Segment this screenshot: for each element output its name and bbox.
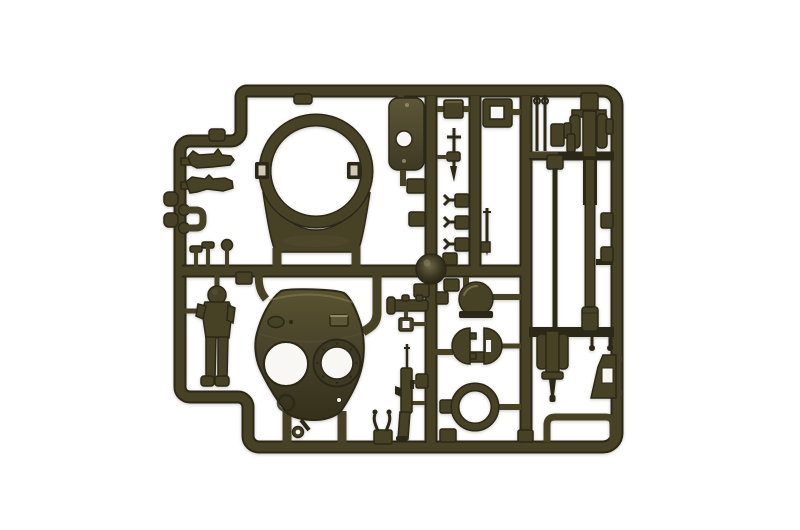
needle-rod-part bbox=[481, 208, 491, 256]
sprue-photo bbox=[0, 0, 800, 530]
stowage-tool-part-2 bbox=[181, 175, 233, 193]
sprue-boss bbox=[416, 254, 446, 284]
sprue-pins bbox=[190, 240, 233, 268]
figure-leg bbox=[206, 337, 216, 379]
fitting-block-part bbox=[437, 100, 470, 118]
gate-tab bbox=[209, 129, 225, 141]
ring-lug-slot bbox=[351, 166, 358, 176]
antenna-part bbox=[437, 128, 461, 182]
ring-lug-slot bbox=[259, 166, 266, 176]
collar-sheen bbox=[283, 235, 349, 247]
frame-opening bbox=[490, 106, 504, 119]
plate-hole bbox=[396, 131, 412, 147]
gate-tab bbox=[294, 94, 312, 104]
rail-blocks bbox=[440, 429, 533, 442]
figure-leg bbox=[218, 337, 228, 379]
vision-port bbox=[268, 317, 284, 328]
turret-ring-part bbox=[255, 120, 370, 268]
gun-mount-part bbox=[551, 93, 613, 157]
stowage-tool-part-1 bbox=[181, 149, 234, 168]
gun-barrel-part bbox=[582, 157, 598, 331]
periscope-part bbox=[387, 295, 428, 331]
dome-hatch-part bbox=[459, 277, 521, 318]
rifle-part bbox=[395, 344, 425, 441]
gate-tab bbox=[164, 192, 178, 206]
turret-hatch-hole-left bbox=[264, 342, 308, 386]
turret-shell-part bbox=[255, 273, 377, 444]
tow-bar-part bbox=[547, 417, 613, 442]
door-slot bbox=[486, 340, 491, 352]
clevis-parts bbox=[444, 194, 469, 251]
wishbone-part bbox=[373, 410, 393, 445]
barrel-rod-part bbox=[547, 155, 563, 331]
seal-ring-part bbox=[440, 387, 521, 427]
photo-stage bbox=[0, 0, 800, 530]
commander-hatch-frame-part bbox=[483, 99, 521, 127]
hatch-doors-part bbox=[434, 328, 521, 364]
gate-tab bbox=[164, 213, 178, 227]
crew-figure-part bbox=[184, 272, 235, 386]
shield-slot bbox=[602, 368, 613, 383]
muzzle-collar bbox=[582, 307, 598, 331]
turret-hatch-hole-right bbox=[321, 347, 353, 379]
hatch-door-left bbox=[452, 328, 470, 364]
hatch-plate-part bbox=[389, 90, 424, 186]
